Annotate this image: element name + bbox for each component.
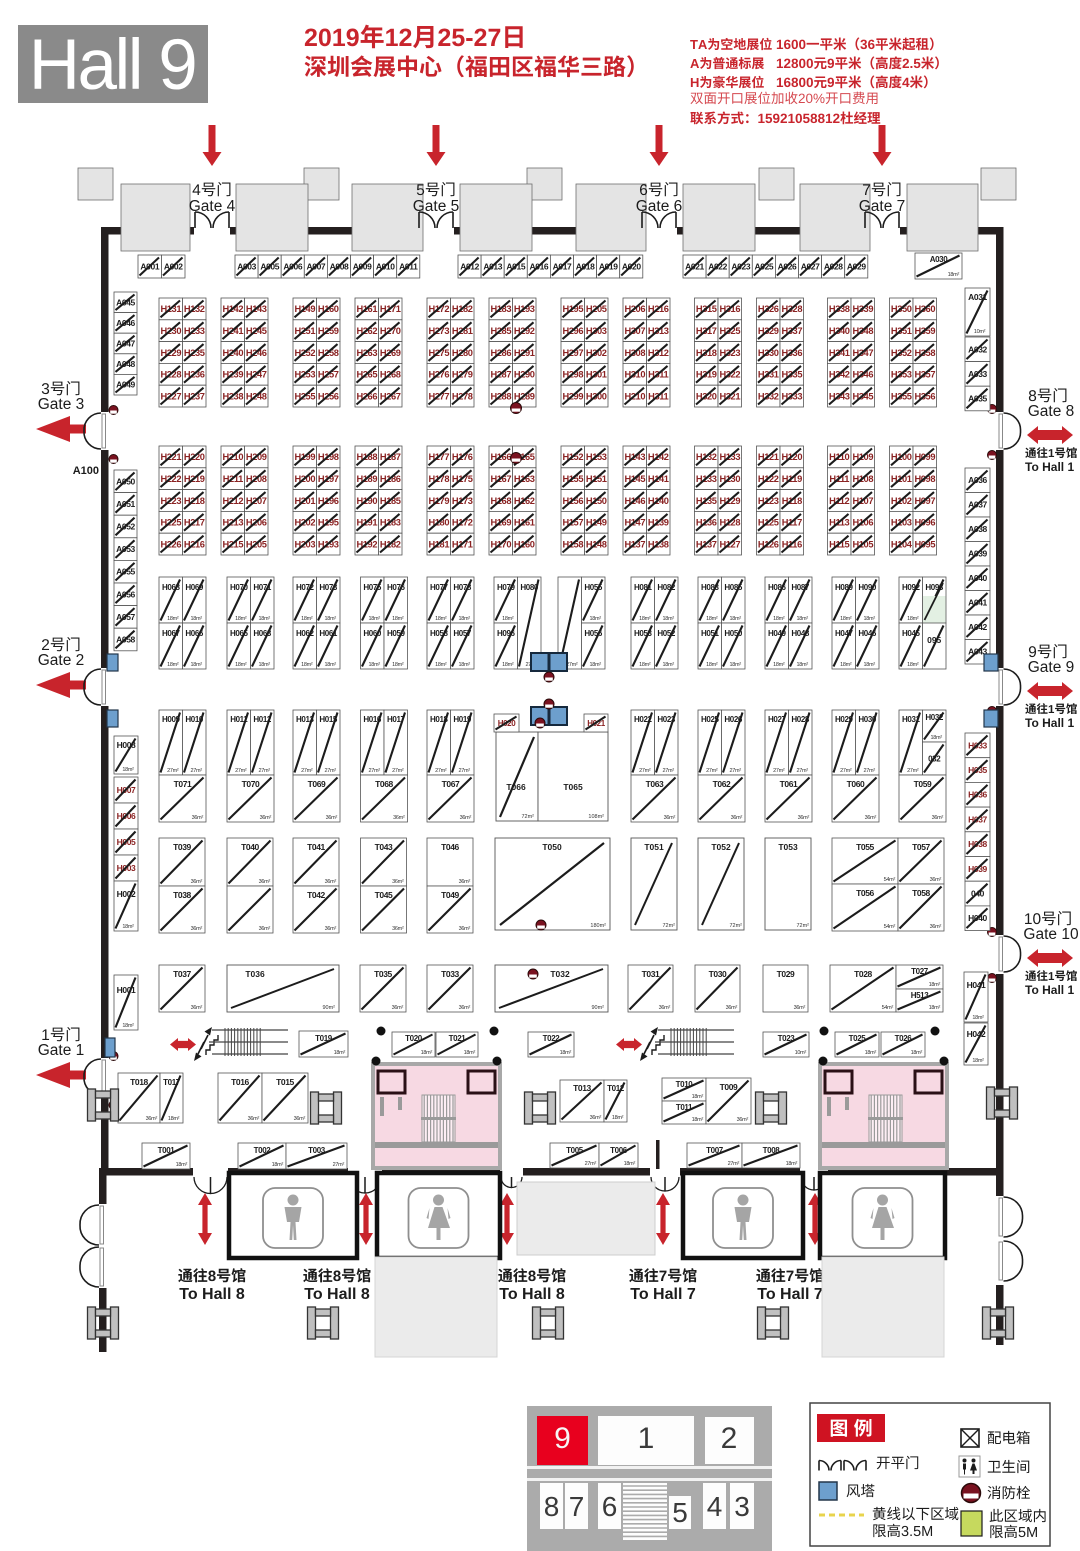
svg-text:T058: T058 (912, 888, 930, 898)
svg-text:18m²: 18m² (502, 616, 514, 622)
svg-text:36m²: 36m² (248, 1116, 260, 1122)
svg-text:18m²: 18m² (167, 662, 179, 668)
svg-text:18m²: 18m² (972, 1058, 984, 1064)
svg-text:To Hall 8: To Hall 8 (499, 1286, 565, 1303)
svg-text:27m²: 27m² (191, 768, 203, 774)
svg-text:36m²: 36m² (260, 815, 272, 821)
svg-text:72m²: 72m² (729, 923, 742, 929)
svg-text:18m²: 18m² (624, 1161, 636, 1167)
svg-text:T062: T062 (713, 779, 731, 789)
svg-text:T028: T028 (854, 969, 872, 979)
svg-text:72m²: 72m² (796, 923, 809, 929)
svg-text:T055: T055 (856, 842, 874, 852)
svg-text:Gate 3: Gate 3 (38, 396, 85, 413)
svg-text:18m²: 18m² (435, 616, 447, 622)
svg-text:T037: T037 (173, 969, 191, 979)
svg-text:18m²: 18m² (325, 616, 337, 622)
svg-text:18m²: 18m² (392, 616, 404, 622)
svg-text:36m²: 36m² (459, 879, 471, 885)
svg-text:108m²: 108m² (588, 814, 604, 820)
svg-text:27m²: 27m² (663, 768, 675, 774)
svg-text:4: 4 (707, 1491, 723, 1522)
svg-text:H001: H001 (117, 985, 136, 995)
svg-text:T061: T061 (780, 779, 798, 789)
svg-text:T056: T056 (856, 888, 874, 898)
svg-text:T018: T018 (130, 1077, 148, 1087)
svg-text:54m²: 54m² (884, 924, 896, 930)
svg-text:27m²: 27m² (301, 768, 313, 774)
svg-text:To Hall 1: To Hall 1 (1025, 460, 1074, 474)
svg-text:T010: T010 (676, 1080, 694, 1089)
svg-text:18m²: 18m² (865, 1050, 877, 1056)
svg-text:10m²: 10m² (795, 1050, 807, 1056)
svg-text:18m²: 18m² (325, 662, 337, 668)
svg-text:18m²: 18m² (911, 1050, 923, 1056)
svg-text:H513: H513 (911, 991, 929, 1000)
svg-text:18m²: 18m² (168, 1116, 180, 1122)
svg-text:36m²: 36m² (798, 815, 810, 821)
svg-text:18m²: 18m² (692, 1117, 704, 1123)
svg-text:18m²: 18m² (369, 662, 381, 668)
svg-text:5: 5 (672, 1497, 688, 1528)
svg-text:36m²: 36m² (932, 815, 944, 821)
svg-text:1: 1 (638, 1422, 655, 1455)
svg-text:36m²: 36m² (325, 879, 337, 885)
svg-text:36m²: 36m² (731, 815, 743, 821)
svg-text:Gate 8: Gate 8 (1028, 403, 1075, 420)
svg-text:T011: T011 (676, 1103, 693, 1112)
svg-text:36m²: 36m² (259, 926, 271, 932)
svg-text:36m²: 36m² (737, 1117, 749, 1123)
svg-text:36m²: 36m² (294, 1116, 306, 1122)
svg-text:18m²: 18m² (259, 662, 271, 668)
svg-text:27m²: 27m² (435, 768, 447, 774)
svg-text:18m²: 18m² (773, 662, 785, 668)
svg-text:18m²: 18m² (502, 662, 514, 668)
svg-text:8: 8 (544, 1491, 560, 1522)
svg-text:T042: T042 (307, 890, 325, 900)
svg-text:18m²: 18m² (464, 1050, 476, 1056)
svg-text:T063: T063 (646, 779, 664, 789)
svg-text:T040: T040 (241, 842, 259, 852)
svg-text:36m²: 36m² (192, 815, 204, 821)
svg-text:18m²: 18m² (459, 662, 471, 668)
svg-text:9: 9 (554, 1422, 571, 1455)
svg-text:27m²: 27m² (797, 768, 809, 774)
svg-text:Gate 9: Gate 9 (1028, 659, 1075, 676)
svg-text:T067: T067 (442, 779, 460, 789)
svg-text:36m²: 36m² (392, 879, 404, 885)
svg-text:36m²: 36m² (659, 1005, 671, 1011)
svg-text:27m²: 27m² (369, 768, 381, 774)
svg-text:18m²: 18m² (590, 662, 602, 668)
svg-text:27m²: 27m² (459, 768, 471, 774)
svg-text:18m²: 18m² (929, 1005, 941, 1011)
svg-text:T065: T065 (563, 782, 583, 792)
svg-text:18m²: 18m² (459, 616, 471, 622)
svg-text:18m²: 18m² (907, 662, 919, 668)
svg-text:72m²: 72m² (662, 923, 675, 929)
svg-text:18m²: 18m² (797, 616, 809, 622)
svg-text:18m²: 18m² (301, 662, 313, 668)
svg-text:18m²: 18m² (612, 1115, 624, 1121)
svg-text:18m²: 18m² (421, 1050, 433, 1056)
svg-text:To Hall 1: To Hall 1 (1025, 716, 1074, 730)
svg-text:T005: T005 (566, 1146, 584, 1155)
svg-text:T071: T071 (174, 779, 192, 789)
svg-text:36m²: 36m² (326, 815, 338, 821)
svg-text:18m²: 18m² (864, 616, 876, 622)
svg-text:18m²: 18m² (639, 662, 651, 668)
svg-text:54m²: 54m² (884, 877, 896, 883)
svg-text:T046: T046 (441, 842, 459, 852)
svg-text:27m²: 27m² (773, 768, 785, 774)
svg-text:18m²: 18m² (786, 1161, 798, 1167)
svg-text:90m²: 90m² (322, 1005, 335, 1011)
svg-text:18m²: 18m² (692, 1094, 704, 1100)
svg-text:18m²: 18m² (663, 662, 675, 668)
svg-text:T052: T052 (711, 842, 731, 852)
svg-text:T041: T041 (307, 842, 325, 852)
svg-text:18m²: 18m² (122, 924, 134, 930)
svg-text:18m²: 18m² (948, 272, 960, 278)
svg-text:18m²: 18m² (907, 616, 919, 622)
svg-text:27m²: 27m² (259, 768, 271, 774)
svg-text:18m²: 18m² (663, 616, 675, 622)
svg-text:36m²: 36m² (146, 1116, 158, 1122)
svg-text:36m²: 36m² (794, 1005, 806, 1011)
svg-text:18m²: 18m² (392, 662, 404, 668)
svg-text:T057: T057 (912, 842, 930, 852)
svg-text:18m²: 18m² (235, 662, 247, 668)
svg-text:T068: T068 (375, 779, 393, 789)
svg-text:T009: T009 (720, 1082, 738, 1092)
svg-text:T069: T069 (308, 779, 326, 789)
svg-text:T049: T049 (441, 890, 459, 900)
svg-text:18m²: 18m² (235, 616, 247, 622)
svg-text:36m²: 36m² (590, 1115, 602, 1121)
svg-text:T053: T053 (778, 842, 798, 852)
svg-text:27m²: 27m² (167, 768, 179, 774)
svg-text:18m²: 18m² (435, 662, 447, 668)
svg-text:27m²: 27m² (333, 1162, 345, 1168)
svg-text:T059: T059 (914, 779, 932, 789)
svg-text:18m²: 18m² (122, 767, 134, 773)
svg-text:18m²: 18m² (706, 616, 718, 622)
svg-text:27m²: 27m² (325, 768, 337, 774)
svg-text:72m²: 72m² (521, 814, 534, 820)
svg-text:36m²: 36m² (930, 924, 942, 930)
svg-text:3: 3 (734, 1491, 750, 1522)
svg-text:27m²: 27m² (840, 768, 852, 774)
svg-text:36m²: 36m² (393, 815, 405, 821)
svg-text:To Hall 7: To Hall 7 (757, 1286, 823, 1303)
svg-text:T043: T043 (375, 842, 393, 852)
svg-text:To Hall 8: To Hall 8 (304, 1286, 370, 1303)
svg-text:36m²: 36m² (459, 926, 471, 932)
svg-text:36m²: 36m² (392, 1005, 404, 1011)
svg-text:18m²: 18m² (259, 616, 271, 622)
svg-text:18m²: 18m² (797, 662, 809, 668)
svg-text:90m²: 90m² (591, 1005, 604, 1011)
svg-text:T029: T029 (777, 969, 795, 979)
svg-text:36m²: 36m² (930, 877, 942, 883)
svg-text:Gate 1: Gate 1 (38, 1042, 85, 1059)
svg-text:27m²: 27m² (864, 768, 876, 774)
svg-text:18m²: 18m² (730, 616, 742, 622)
svg-text:36m²: 36m² (259, 879, 271, 885)
svg-text:36m²: 36m² (325, 926, 337, 932)
svg-text:18m²: 18m² (176, 1162, 188, 1168)
svg-text:27m²: 27m² (235, 768, 247, 774)
svg-text:18m²: 18m² (840, 662, 852, 668)
svg-text:18m²: 18m² (122, 1023, 134, 1029)
svg-text:18m²: 18m² (590, 616, 602, 622)
svg-text:T016: T016 (231, 1077, 249, 1087)
svg-text:36m²: 36m² (726, 1005, 738, 1011)
svg-text:T060: T060 (847, 779, 865, 789)
svg-text:T033: T033 (441, 969, 459, 979)
svg-text:10m²: 10m² (974, 329, 986, 335)
svg-text:18m²: 18m² (929, 982, 941, 988)
svg-text:18m²: 18m² (560, 1050, 572, 1056)
svg-text:Gate 2: Gate 2 (38, 652, 85, 669)
svg-text:27m²: 27m² (392, 768, 404, 774)
svg-text:T013: T013 (573, 1083, 591, 1093)
svg-text:18m²: 18m² (191, 616, 203, 622)
svg-text:18m²: 18m² (272, 1162, 284, 1168)
svg-text:T036: T036 (245, 969, 265, 979)
svg-text:27m²: 27m² (639, 768, 651, 774)
svg-text:T035: T035 (374, 969, 392, 979)
svg-text:To Hall 1: To Hall 1 (1025, 983, 1074, 997)
svg-text:27m²: 27m² (728, 1161, 740, 1167)
svg-text:27m²: 27m² (907, 768, 919, 774)
svg-text:T045: T045 (375, 890, 393, 900)
svg-text:18m²: 18m² (301, 616, 313, 622)
svg-text:T015: T015 (276, 1077, 294, 1087)
svg-text:18m²: 18m² (972, 1015, 984, 1021)
svg-text:36m²: 36m² (191, 879, 203, 885)
svg-text:6: 6 (602, 1491, 618, 1522)
svg-text:A100: A100 (73, 465, 99, 477)
svg-text:To Hall 8: To Hall 8 (179, 1286, 245, 1303)
svg-text:18m²: 18m² (730, 662, 742, 668)
svg-text:T038: T038 (173, 890, 191, 900)
svg-text:36m²: 36m² (392, 926, 404, 932)
svg-text:18m²: 18m² (931, 735, 943, 741)
svg-text:36m²: 36m² (664, 815, 676, 821)
svg-text:Gate 10: Gate 10 (1023, 926, 1079, 943)
svg-text:18m²: 18m² (191, 662, 203, 668)
svg-text:7: 7 (569, 1491, 585, 1522)
svg-text:54m²: 54m² (882, 1005, 894, 1011)
svg-text:T051: T051 (644, 842, 664, 852)
svg-text:18m²: 18m² (369, 616, 381, 622)
svg-text:T030: T030 (709, 969, 727, 979)
svg-text:18m²: 18m² (167, 616, 179, 622)
svg-text:Hall 9: Hall 9 (29, 26, 196, 105)
svg-text:T039: T039 (173, 842, 191, 852)
svg-text:T070: T070 (242, 779, 260, 789)
svg-text:18m²: 18m² (334, 1050, 346, 1056)
svg-text:36m²: 36m² (865, 815, 877, 821)
svg-text:T050: T050 (542, 842, 562, 852)
svg-text:2: 2 (721, 1422, 738, 1455)
svg-text:18m²: 18m² (840, 616, 852, 622)
svg-text:36m²: 36m² (460, 815, 472, 821)
svg-text:18m²: 18m² (706, 662, 718, 668)
svg-text:36m²: 36m² (191, 926, 203, 932)
svg-text:27m²: 27m² (730, 768, 742, 774)
svg-text:18m²: 18m² (773, 616, 785, 622)
svg-text:095: 095 (927, 635, 941, 645)
svg-text:36m²: 36m² (459, 1005, 471, 1011)
svg-text:To Hall 7: To Hall 7 (630, 1286, 696, 1303)
svg-text:T031: T031 (642, 969, 660, 979)
svg-text:180m²: 180m² (590, 923, 606, 929)
svg-text:27m²: 27m² (706, 768, 718, 774)
svg-text:T032: T032 (550, 969, 570, 979)
svg-text:18m²: 18m² (864, 662, 876, 668)
svg-text:18m²: 18m² (639, 616, 651, 622)
svg-text:27m²: 27m² (585, 1161, 597, 1167)
svg-text:36m²: 36m² (191, 1005, 203, 1011)
svg-text:T066: T066 (506, 782, 526, 792)
